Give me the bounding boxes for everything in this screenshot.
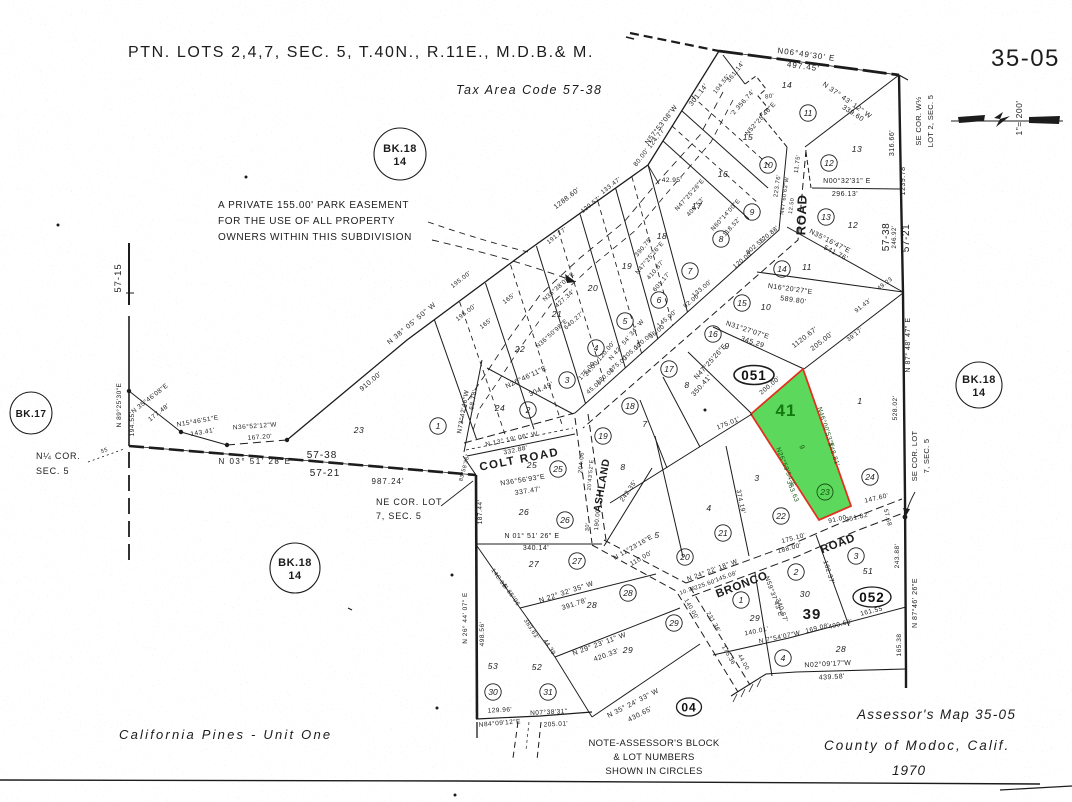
svg-text:A PRIVATE 155.00' PARK EASEMEN: A PRIVATE 155.00' PARK EASEMENT xyxy=(218,200,409,211)
svg-text:6: 6 xyxy=(657,295,662,305)
svg-text:NOTE-ASSESSOR'S BLOCK: NOTE-ASSESSOR'S BLOCK xyxy=(588,738,719,749)
svg-text:BK.18: BK.18 xyxy=(278,557,312,569)
svg-text:246.92': 246.92' xyxy=(892,226,898,249)
svg-text:7: 7 xyxy=(642,419,647,429)
svg-text:5: 5 xyxy=(654,530,659,540)
svg-text:57-21: 57-21 xyxy=(901,224,912,253)
svg-text:53: 53 xyxy=(488,661,498,671)
svg-text:SHOWN IN CIRCLES: SHOWN IN CIRCLES xyxy=(605,766,702,777)
svg-text:28: 28 xyxy=(835,644,846,654)
svg-text:23: 23 xyxy=(353,425,364,435)
svg-text:N 03° 51' 28"E: N 03° 51' 28"E xyxy=(218,457,291,466)
svg-text:30: 30 xyxy=(488,687,498,697)
svg-text:11: 11 xyxy=(804,108,813,118)
svg-text:N 01° 51' 26" E: N 01° 51' 26" E xyxy=(505,532,560,540)
svg-text:10: 10 xyxy=(763,160,773,170)
svg-text:24: 24 xyxy=(494,403,505,413)
svg-text:51: 51 xyxy=(863,566,873,576)
svg-text:28: 28 xyxy=(586,600,597,610)
svg-text:987.24': 987.24' xyxy=(372,477,405,486)
svg-text:23: 23 xyxy=(819,487,830,497)
svg-text:8: 8 xyxy=(620,462,625,472)
svg-text:22: 22 xyxy=(514,344,525,354)
svg-text:N¼ COR.: N¼ COR. xyxy=(36,451,81,461)
svg-text:14: 14 xyxy=(393,156,407,168)
svg-text:31: 31 xyxy=(543,687,553,697)
svg-text:18: 18 xyxy=(657,231,667,241)
svg-text:051: 051 xyxy=(741,368,767,383)
svg-text:N00°32'31" E: N00°32'31" E xyxy=(823,177,871,185)
svg-text:16: 16 xyxy=(708,329,718,339)
svg-text:13: 13 xyxy=(852,144,862,154)
svg-text:SE COR. W½: SE COR. W½ xyxy=(914,96,923,146)
svg-text:316.66': 316.66' xyxy=(889,130,896,156)
svg-text:15: 15 xyxy=(743,132,753,142)
svg-text:3: 3 xyxy=(854,551,859,561)
svg-text:4: 4 xyxy=(781,653,786,663)
svg-text:11: 11 xyxy=(802,262,812,272)
svg-text:57-15: 57-15 xyxy=(113,263,124,292)
svg-text:N 89°25'30"E: N 89°25'30"E xyxy=(115,383,123,428)
svg-text:29: 29 xyxy=(749,613,760,623)
svg-text:3: 3 xyxy=(565,375,570,385)
svg-text:N 87° 48' 47" E: N 87° 48' 47" E xyxy=(904,318,912,373)
svg-text:1970: 1970 xyxy=(892,763,926,778)
svg-text:BK.18: BK.18 xyxy=(383,143,417,155)
svg-text:8: 8 xyxy=(684,380,689,390)
svg-text:129.96': 129.96' xyxy=(487,706,512,714)
svg-text:Assessor's Map 35-05: Assessor's Map 35-05 xyxy=(856,707,1016,722)
svg-text:1239.78': 1239.78' xyxy=(900,165,907,196)
svg-text:FOR THE USE OF ALL PROPERTY: FOR THE USE OF ALL PROPERTY xyxy=(218,216,395,227)
svg-text:1: 1 xyxy=(739,595,744,605)
svg-text:21: 21 xyxy=(717,528,728,538)
svg-text:OWNERS WITHIN THIS SUBDIVISION: OWNERS WITHIN THIS SUBDIVISION xyxy=(218,232,412,243)
svg-text:52: 52 xyxy=(532,662,542,672)
svg-text:9: 9 xyxy=(750,207,755,217)
svg-text:NE COR. LOT: NE COR. LOT xyxy=(376,497,442,507)
svg-text:42.95': 42.95' xyxy=(662,177,683,184)
svg-text:& LOT NUMBERS: & LOT NUMBERS xyxy=(613,752,694,763)
svg-text:243.88': 243.88' xyxy=(894,544,901,569)
svg-text:41: 41 xyxy=(776,401,797,420)
svg-text:14: 14 xyxy=(777,264,787,274)
svg-text:Tax Area Code 57-38: Tax Area Code 57-38 xyxy=(456,83,602,97)
svg-text:17: 17 xyxy=(664,364,674,374)
svg-text:439.58': 439.58' xyxy=(819,673,846,681)
svg-text:26: 26 xyxy=(559,515,570,525)
svg-text:30: 30 xyxy=(800,589,810,599)
svg-text:7, SEC. 5: 7, SEC. 5 xyxy=(922,439,931,474)
svg-text:7: 7 xyxy=(688,266,693,276)
svg-text:County of Modoc, Calif.: County of Modoc, Calif. xyxy=(824,738,1010,753)
svg-text:19: 19 xyxy=(622,261,632,271)
svg-text:4: 4 xyxy=(594,343,599,353)
svg-text:21: 21 xyxy=(551,309,562,319)
svg-text:SE COR. LOT: SE COR. LOT xyxy=(910,430,919,481)
svg-text:1: 1 xyxy=(857,396,862,406)
svg-text:498.56': 498.56' xyxy=(479,622,486,647)
svg-text:528.02': 528.02' xyxy=(892,396,899,421)
svg-text:10: 10 xyxy=(761,302,771,312)
svg-text:052: 052 xyxy=(859,590,885,605)
svg-text:18: 18 xyxy=(625,401,635,411)
svg-text:25: 25 xyxy=(552,464,563,474)
svg-text:SEC. 5: SEC. 5 xyxy=(36,466,69,476)
svg-text:29: 29 xyxy=(668,618,679,628)
svg-text:BK.18: BK.18 xyxy=(962,374,996,386)
svg-text:14: 14 xyxy=(972,387,986,399)
svg-text:29: 29 xyxy=(622,645,633,655)
svg-text:LOT 2, SEC. 5: LOT 2, SEC. 5 xyxy=(926,95,935,148)
svg-text:N 87°46' 26"E: N 87°46' 26"E xyxy=(911,578,919,628)
svg-text:194.55': 194.55' xyxy=(129,412,136,437)
svg-text:15: 15 xyxy=(737,298,747,308)
svg-text:12: 12 xyxy=(848,220,858,230)
svg-text:57-38: 57-38 xyxy=(881,223,892,252)
svg-text:165.38: 165.38 xyxy=(896,634,903,657)
svg-text:35-05: 35-05 xyxy=(991,45,1060,72)
svg-text:20: 20 xyxy=(587,283,598,293)
svg-text:39: 39 xyxy=(803,606,822,623)
svg-text:26: 26 xyxy=(518,507,529,517)
svg-text:24: 24 xyxy=(864,472,875,482)
svg-text:296.13': 296.13' xyxy=(832,191,858,198)
svg-text:4: 4 xyxy=(706,503,711,513)
svg-text:PTN. LOTS 2,4,7, SEC. 5, T.40N: PTN. LOTS 2,4,7, SEC. 5, T.40N., R.11E.,… xyxy=(128,44,594,61)
svg-text:20: 20 xyxy=(679,552,690,562)
svg-text:30': 30' xyxy=(585,522,592,531)
svg-text:187.44': 187.44' xyxy=(477,500,484,525)
svg-text:2: 2 xyxy=(793,567,799,577)
svg-text:57-21: 57-21 xyxy=(310,468,341,479)
svg-text:BK.17: BK.17 xyxy=(16,409,47,420)
svg-text:28: 28 xyxy=(622,588,633,598)
svg-text:16: 16 xyxy=(718,169,728,179)
svg-text:25: 25 xyxy=(526,460,537,470)
svg-text:1"= 200': 1"= 200' xyxy=(1014,101,1024,136)
svg-text:205.01': 205.01' xyxy=(543,720,568,728)
svg-text:22: 22 xyxy=(775,511,786,521)
svg-text:340.14': 340.14' xyxy=(523,545,549,552)
svg-text:3: 3 xyxy=(754,473,759,483)
svg-text:12: 12 xyxy=(824,158,834,168)
svg-text:04: 04 xyxy=(681,700,696,714)
svg-text:19: 19 xyxy=(598,431,608,441)
svg-text:2: 2 xyxy=(525,405,531,415)
svg-text:14: 14 xyxy=(782,80,792,90)
svg-text:1: 1 xyxy=(436,421,441,431)
svg-text:13: 13 xyxy=(821,212,831,222)
svg-text:27: 27 xyxy=(571,556,582,566)
svg-text:27: 27 xyxy=(528,559,539,569)
svg-text:California Pines - Unit: California Pines - Unit One xyxy=(119,727,332,742)
svg-text:N 26° 44' 07" E: N 26° 44' 07" E xyxy=(461,592,469,644)
svg-text:57-38: 57-38 xyxy=(307,450,338,461)
svg-text:17: 17 xyxy=(692,201,702,211)
svg-text:14: 14 xyxy=(288,570,302,582)
svg-text:8: 8 xyxy=(719,234,724,244)
svg-text:7, SEC. 5: 7, SEC. 5 xyxy=(376,511,422,521)
svg-text:5: 5 xyxy=(623,316,628,326)
